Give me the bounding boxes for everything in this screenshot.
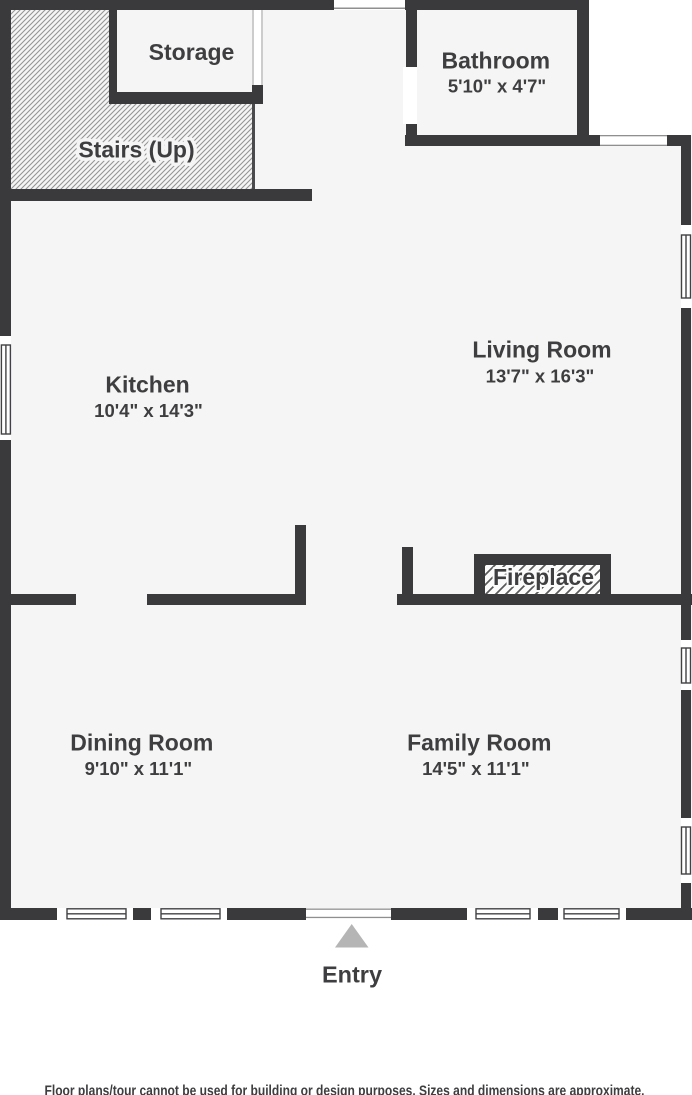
- svg-text:Bathroom: Bathroom: [441, 47, 550, 73]
- svg-text:Living Room: Living Room: [472, 337, 611, 363]
- svg-text:Floor plans/tour cannot be use: Floor plans/tour cannot be used for buil…: [45, 1082, 645, 1095]
- svg-text:Kitchen: Kitchen: [105, 371, 189, 397]
- svg-text:Family Room: Family Room: [407, 730, 551, 756]
- svg-text:Fireplace: Fireplace: [493, 564, 594, 590]
- svg-text:Entry: Entry: [322, 962, 382, 988]
- svg-text:10'4" x 14'3": 10'4" x 14'3": [94, 400, 203, 421]
- svg-text:Dining Room: Dining Room: [70, 730, 213, 756]
- svg-text:14'5" x 11'1": 14'5" x 11'1": [422, 758, 530, 779]
- svg-text:5'10" x 4'7": 5'10" x 4'7": [448, 76, 546, 97]
- svg-text:Storage: Storage: [149, 39, 235, 65]
- svg-text:9'10" x 11'1": 9'10" x 11'1": [85, 758, 193, 779]
- svg-text:13'7" x 16'3": 13'7" x 16'3": [486, 365, 595, 386]
- svg-text:Stairs (Up): Stairs (Up): [78, 136, 194, 162]
